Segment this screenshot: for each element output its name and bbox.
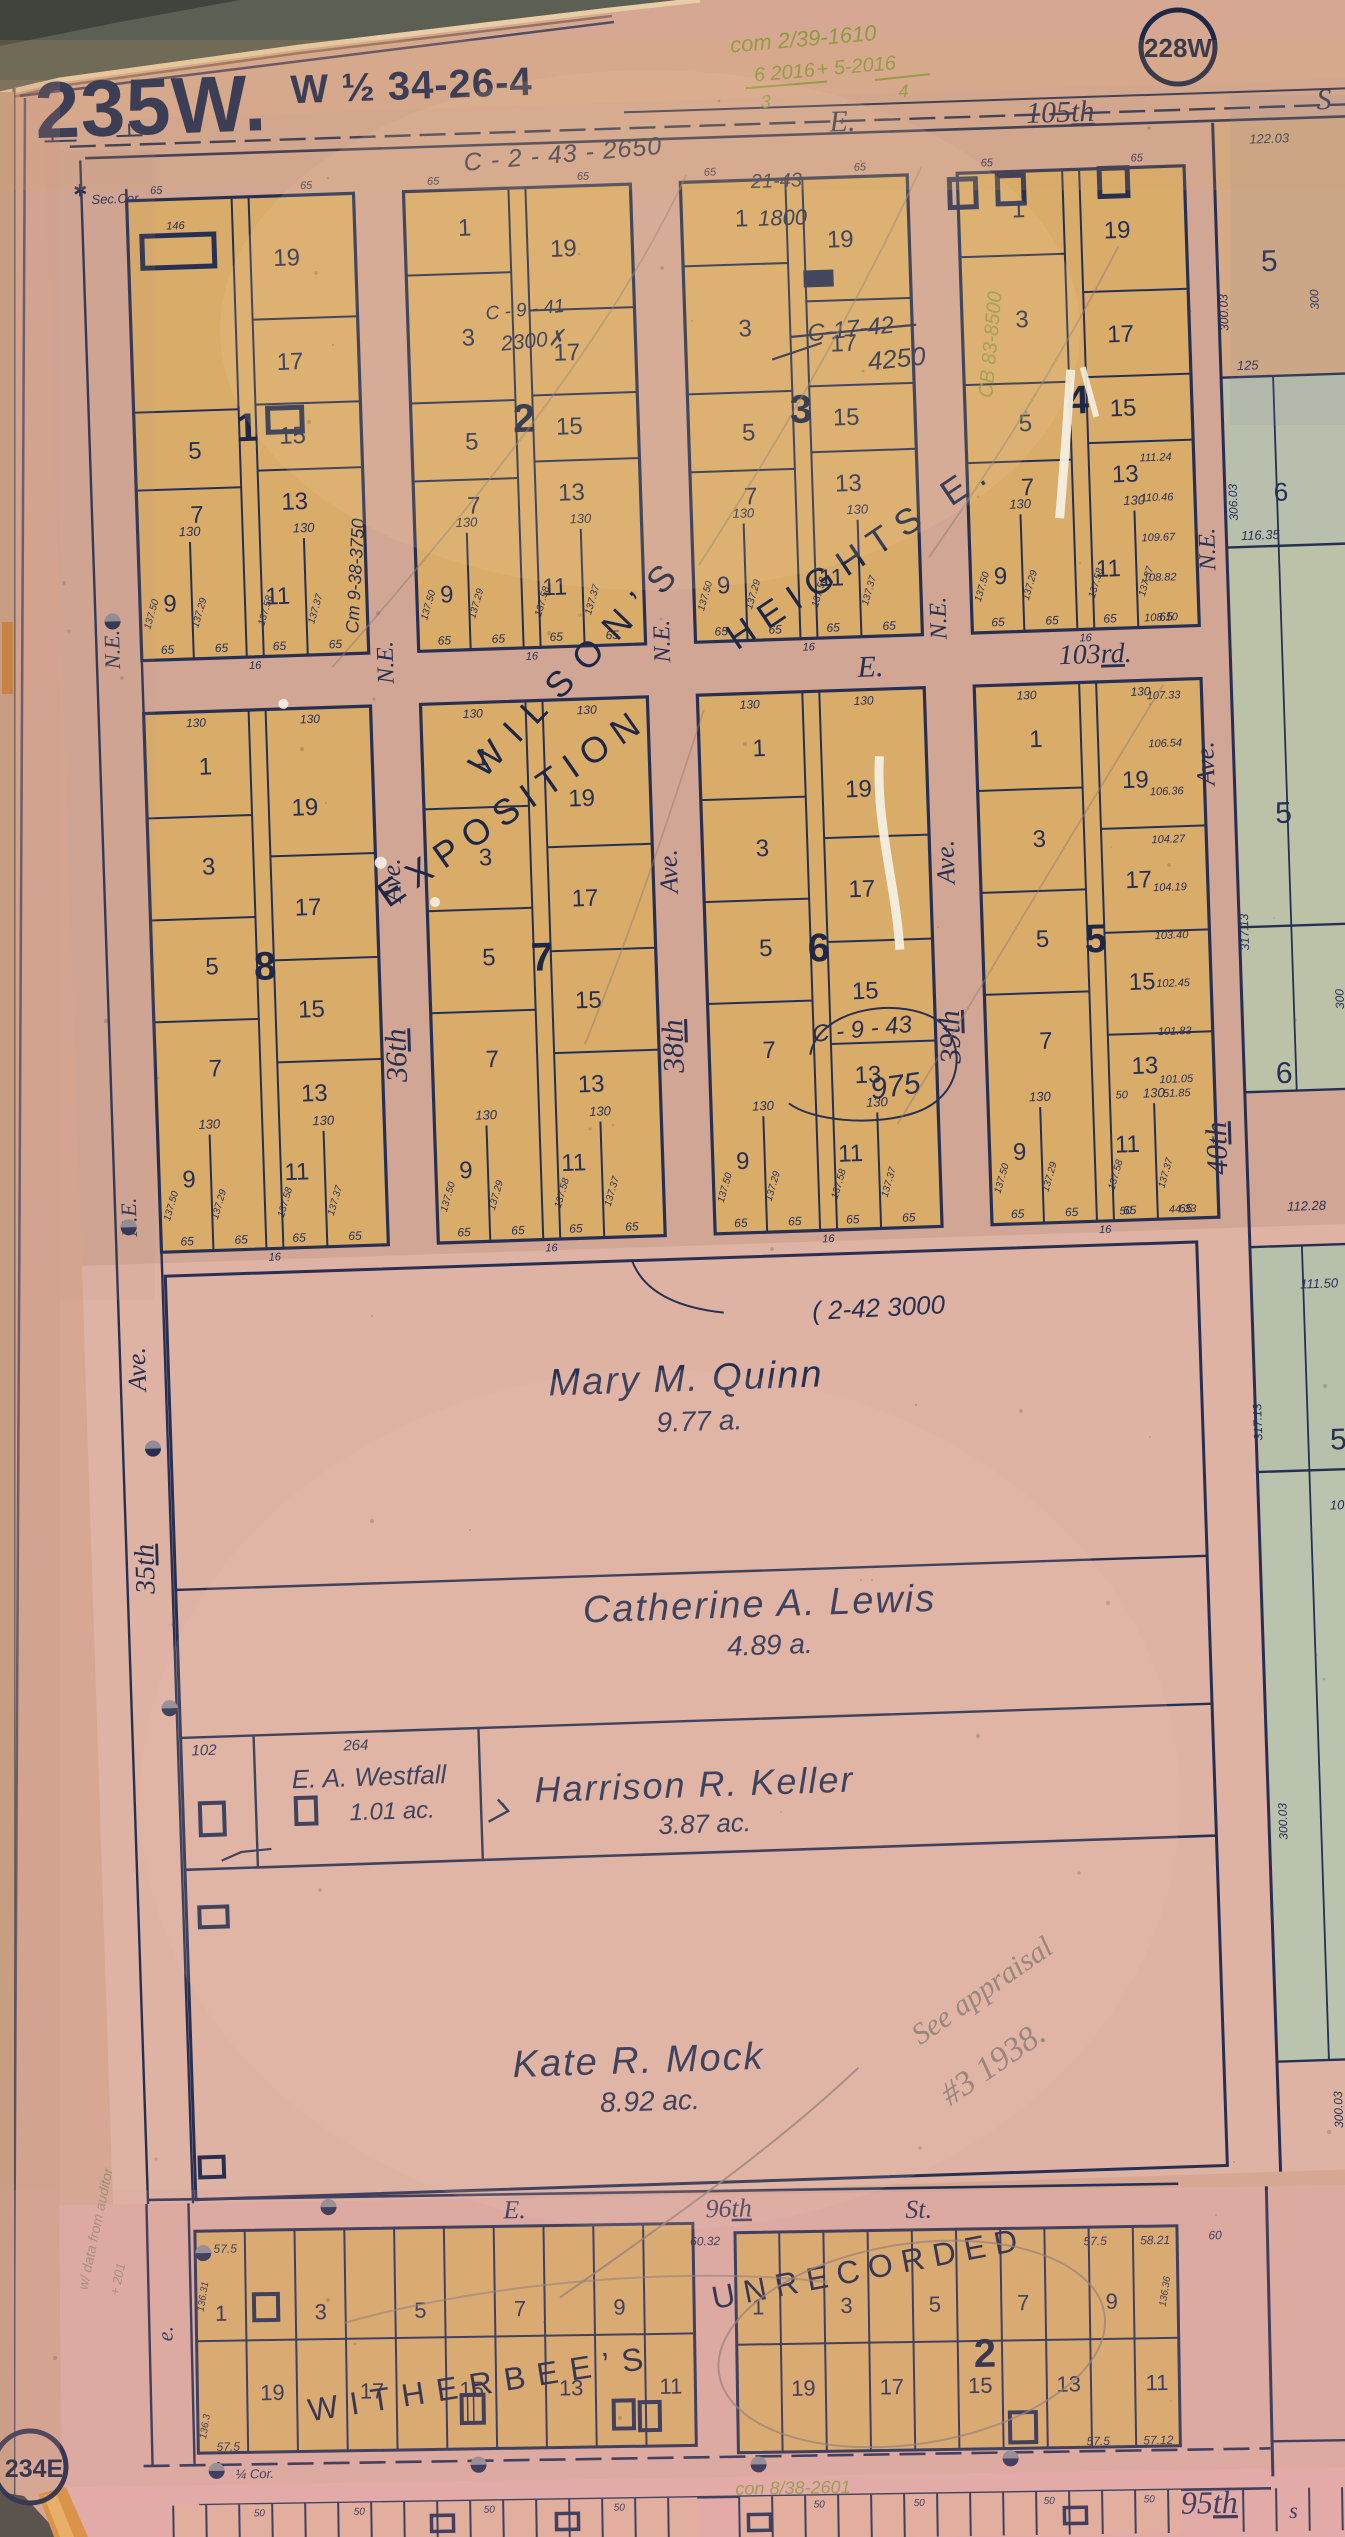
svg-text:17: 17 <box>571 885 599 913</box>
svg-text:16: 16 <box>268 1251 282 1263</box>
svg-text:65: 65 <box>292 1230 306 1244</box>
svg-text:108.82: 108.82 <box>1143 571 1177 584</box>
svg-text:65: 65 <box>1011 1207 1025 1221</box>
svg-text:111.24: 111.24 <box>1140 451 1172 464</box>
svg-text:130: 130 <box>292 520 315 536</box>
svg-text:15: 15 <box>298 996 326 1024</box>
svg-text:11: 11 <box>561 1149 587 1177</box>
svg-text:65: 65 <box>569 1221 583 1235</box>
svg-text:7: 7 <box>208 1055 222 1082</box>
svg-text:16: 16 <box>802 641 816 653</box>
svg-text:103.40: 103.40 <box>1155 929 1190 942</box>
svg-text:50: 50 <box>1115 1089 1129 1101</box>
svg-text:5: 5 <box>482 944 496 971</box>
svg-text:7: 7 <box>762 1037 776 1064</box>
svg-text:9: 9 <box>993 563 1007 590</box>
svg-text:130: 130 <box>475 1107 498 1123</box>
svg-text:106.36: 106.36 <box>1150 785 1185 798</box>
svg-text:65: 65 <box>882 619 896 633</box>
svg-text:317.13: 317.13 <box>1237 913 1252 950</box>
svg-text:300: 300 <box>1332 989 1345 1010</box>
svg-text:101.83: 101.83 <box>1158 1025 1193 1038</box>
svg-text:5: 5 <box>1329 1423 1345 1457</box>
svg-text:65: 65 <box>991 615 1005 629</box>
svg-text:7: 7 <box>530 935 554 980</box>
svg-text:104.19: 104.19 <box>1153 881 1187 894</box>
svg-text:17: 17 <box>1107 321 1135 349</box>
svg-text:15: 15 <box>1109 394 1137 422</box>
svg-text:65: 65 <box>161 643 175 657</box>
svg-text:3: 3 <box>1032 826 1046 853</box>
svg-text:16: 16 <box>545 1242 559 1254</box>
svg-text:65: 65 <box>846 1212 860 1226</box>
svg-text:6: 6 <box>1273 477 1288 507</box>
svg-text:5: 5 <box>1084 917 1108 962</box>
svg-text:300.03: 300.03 <box>1331 2091 1345 2128</box>
svg-text:44.33: 44.33 <box>1169 1203 1198 1216</box>
svg-text:130: 130 <box>300 712 321 727</box>
svg-text:130: 130 <box>752 1098 775 1114</box>
svg-text:9: 9 <box>1013 1139 1027 1166</box>
svg-text:300.03: 300.03 <box>1275 1802 1290 1839</box>
svg-text:300.03: 300.03 <box>1216 294 1231 331</box>
svg-text:19: 19 <box>291 794 319 822</box>
svg-text:13: 13 <box>301 1080 329 1108</box>
svg-text:130: 130 <box>186 715 207 730</box>
svg-text:103rd.: 103rd. <box>1058 638 1132 671</box>
svg-text:130: 130 <box>1016 688 1037 703</box>
svg-text:65: 65 <box>734 1216 748 1230</box>
svg-text:7: 7 <box>1039 1028 1053 1055</box>
svg-text:13: 13 <box>281 488 309 516</box>
svg-text:146: 146 <box>166 220 186 233</box>
svg-text:17: 17 <box>294 894 322 922</box>
svg-text:65: 65 <box>234 1232 248 1246</box>
svg-text:11: 11 <box>838 1140 864 1168</box>
svg-text:13: 13 <box>1111 460 1139 488</box>
svg-text:5: 5 <box>188 438 202 465</box>
svg-text:50: 50 <box>1119 1205 1133 1217</box>
svg-text:130: 130 <box>1009 496 1032 512</box>
svg-text:N.E.: N.E. <box>1194 527 1221 572</box>
svg-text:111.50: 111.50 <box>1300 1275 1339 1291</box>
svg-text:130: 130 <box>577 703 598 718</box>
svg-text:104.27: 104.27 <box>1151 833 1186 846</box>
svg-text:110.46: 110.46 <box>1140 491 1174 504</box>
svg-text:E.: E. <box>856 650 884 684</box>
svg-text:9: 9 <box>163 590 177 617</box>
svg-text:65: 65 <box>348 1229 362 1243</box>
svg-text:65: 65 <box>902 1210 916 1224</box>
svg-text:65: 65 <box>788 1214 802 1228</box>
svg-text:36th: 36th <box>379 1028 414 1083</box>
svg-text:65: 65 <box>1065 1205 1079 1219</box>
svg-text:19: 19 <box>1103 217 1131 245</box>
svg-text:130: 130 <box>312 1112 335 1128</box>
svg-text:65: 65 <box>1103 611 1117 625</box>
svg-text:107.33: 107.33 <box>1147 689 1182 702</box>
svg-text:130: 130 <box>179 524 202 540</box>
svg-text:35th: 35th <box>129 1544 162 1596</box>
svg-text:306.03: 306.03 <box>1226 483 1241 520</box>
svg-text:6: 6 <box>807 926 831 971</box>
svg-text:1: 1 <box>752 735 766 762</box>
svg-text:130: 130 <box>1029 1089 1052 1105</box>
svg-text:N.E.: N.E. <box>925 596 952 641</box>
svg-text:130: 130 <box>739 697 760 712</box>
svg-text:130: 130 <box>589 1103 612 1119</box>
svg-text:19: 19 <box>1122 766 1150 794</box>
svg-text:17: 17 <box>848 875 876 903</box>
svg-text:6: 6 <box>1275 1057 1293 1091</box>
svg-text:65: 65 <box>180 1234 194 1248</box>
svg-text:9: 9 <box>459 1157 473 1184</box>
svg-text:130: 130 <box>853 693 874 708</box>
svg-text:16: 16 <box>526 650 540 662</box>
svg-text:13: 13 <box>577 1070 605 1098</box>
svg-text:N.E.: N.E. <box>649 620 676 665</box>
svg-text:106.54: 106.54 <box>1148 737 1182 750</box>
svg-text:1: 1 <box>1029 726 1043 753</box>
svg-text:116.35: 116.35 <box>1241 527 1281 543</box>
svg-text:317.13: 317.13 <box>1250 1403 1265 1440</box>
svg-text:9: 9 <box>440 581 454 608</box>
svg-text:Ave.: Ave. <box>1190 741 1221 788</box>
svg-text:130: 130 <box>198 1116 221 1132</box>
svg-text:975: 975 <box>868 1067 922 1107</box>
svg-text:112.28: 112.28 <box>1287 1198 1327 1214</box>
svg-text:15: 15 <box>1128 968 1156 996</box>
svg-text:13: 13 <box>1131 1052 1159 1080</box>
svg-text:16: 16 <box>1099 1224 1113 1236</box>
svg-text:65: 65 <box>273 639 287 653</box>
svg-text:11: 11 <box>1115 1131 1141 1159</box>
svg-text:102.45: 102.45 <box>1156 977 1191 990</box>
svg-text:65: 65 <box>457 1225 471 1239</box>
svg-text:65: 65 <box>549 630 563 644</box>
svg-text:130: 130 <box>463 706 484 721</box>
svg-text:65: 65 <box>437 633 451 647</box>
svg-text:101.05: 101.05 <box>1159 1073 1194 1086</box>
svg-text:38th: 38th <box>656 1019 691 1074</box>
svg-text:15: 15 <box>851 977 879 1005</box>
svg-text:5: 5 <box>759 935 773 962</box>
svg-text:N.E.: N.E. <box>372 641 399 686</box>
svg-text:7: 7 <box>485 1046 499 1073</box>
svg-text:109.67: 109.67 <box>1141 531 1176 544</box>
svg-text:11: 11 <box>284 1158 310 1186</box>
svg-text:65: 65 <box>511 1223 525 1237</box>
svg-text:108.10: 108.10 <box>1144 611 1179 624</box>
svg-text:Ave.: Ave. <box>122 1347 153 1394</box>
svg-text:51.85: 51.85 <box>1163 1087 1192 1100</box>
svg-text:17: 17 <box>1125 866 1153 894</box>
svg-text:5: 5 <box>1035 926 1049 953</box>
svg-text:9: 9 <box>736 1148 750 1175</box>
svg-text:19: 19 <box>845 775 873 803</box>
svg-text:8: 8 <box>253 944 277 989</box>
svg-text:65: 65 <box>491 632 505 646</box>
svg-text:1: 1 <box>198 753 212 780</box>
svg-text:107.: 107. <box>1330 1497 1345 1513</box>
svg-text:9: 9 <box>182 1166 196 1193</box>
svg-text:3: 3 <box>755 835 769 862</box>
svg-text:65: 65 <box>329 637 343 651</box>
svg-text:16: 16 <box>822 1233 836 1245</box>
svg-text:5: 5 <box>205 953 219 980</box>
svg-text:40th: 40th <box>1200 1121 1235 1175</box>
svg-text:65: 65 <box>1045 613 1059 627</box>
svg-text:16: 16 <box>249 660 263 672</box>
svg-text:65: 65 <box>625 1219 639 1233</box>
svg-text:3: 3 <box>202 853 216 880</box>
svg-text:Ave.: Ave. <box>930 840 961 887</box>
svg-text:65: 65 <box>826 620 840 634</box>
svg-text:65: 65 <box>215 641 229 655</box>
svg-text:5: 5 <box>1275 797 1293 831</box>
svg-text:Ave.: Ave. <box>653 849 684 896</box>
